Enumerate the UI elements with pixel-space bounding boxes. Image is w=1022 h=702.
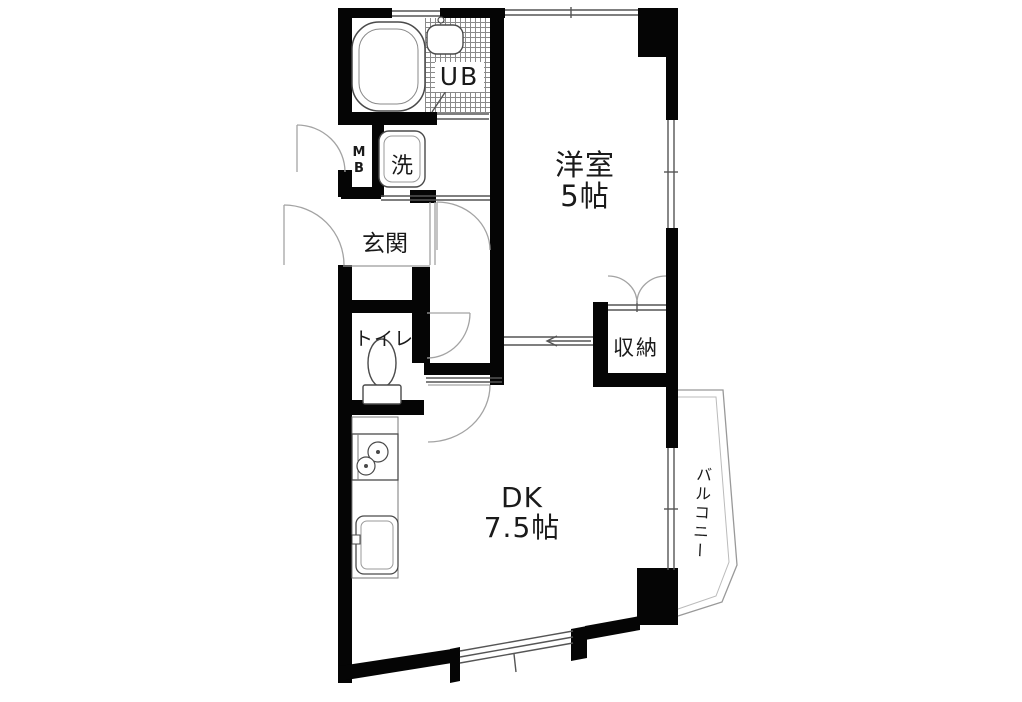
- western-room-label: 洋室: [520, 150, 650, 181]
- unit-bath-label: UB: [435, 62, 484, 92]
- washbasin: [427, 17, 463, 54]
- dk-size: 7.5帖: [447, 513, 597, 543]
- kitchen-sink: [352, 516, 398, 574]
- meter-box-label: M B: [348, 145, 370, 177]
- meter-box-letter-b: B: [348, 161, 370, 177]
- storage-label: 収納: [594, 332, 678, 362]
- floor-plan-svg: [0, 0, 1022, 702]
- dk-label-group: DK 7.5帖: [447, 483, 597, 543]
- bathtub: [352, 22, 425, 111]
- entrance-label: 玄関: [345, 224, 425, 258]
- western-room-size: 5帖: [520, 181, 650, 212]
- toilet-label: トイレ: [344, 324, 424, 351]
- western-room-label-group: 洋室 5帖: [520, 150, 650, 212]
- dk-label: DK: [447, 483, 597, 513]
- floor-plan-canvas: 洋室 5帖 DK 7.5帖 玄関 トイレ 洗 M B UB 収納 バルコニー: [0, 0, 1022, 702]
- washer-label: 洗: [384, 148, 420, 180]
- stove: [352, 434, 398, 480]
- meter-box-letter-m: M: [348, 145, 370, 161]
